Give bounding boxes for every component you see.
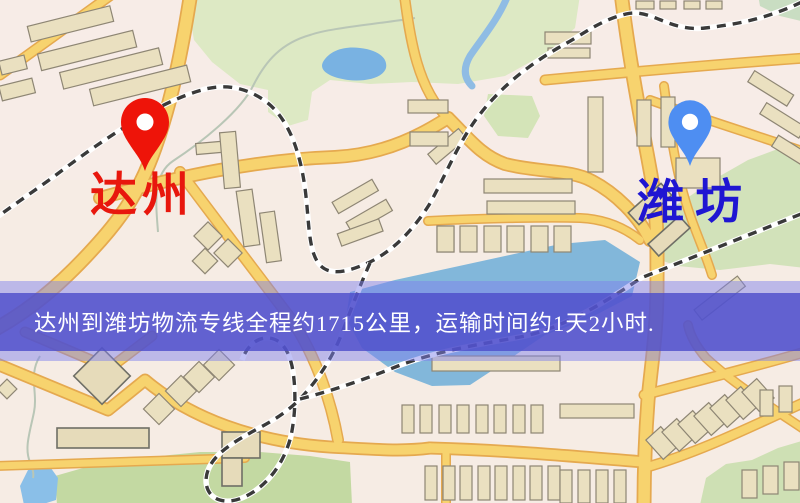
route-info-banner: 达州到潍坊物流专线全程约1715公里，运输时间约1天2小时. bbox=[0, 281, 800, 361]
logistics-route-map: 达州 潍坊 达州到潍坊物流专线全程约1715公里，运输时间约1天2小时. bbox=[0, 0, 800, 503]
map-canvas bbox=[0, 0, 800, 503]
route-info-band: 达州到潍坊物流专线全程约1715公里，运输时间约1天2小时. bbox=[0, 293, 800, 351]
route-info-text: 达州到潍坊物流专线全程约1715公里，运输时间约1天2小时. bbox=[0, 306, 655, 338]
destination-city-label: 潍坊 bbox=[637, 180, 753, 227]
origin-city-label: 达州 bbox=[90, 173, 194, 220]
